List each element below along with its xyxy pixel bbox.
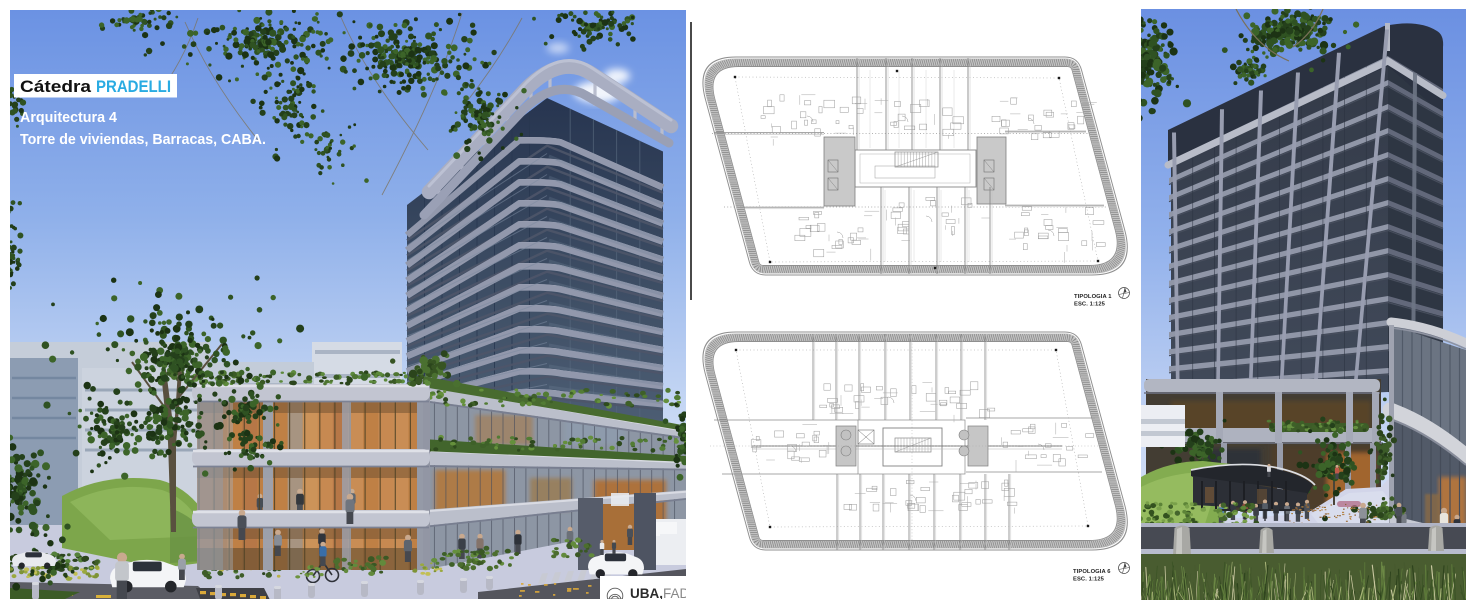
svg-text:ESC. 1:125: ESC. 1:125 [1073, 577, 1105, 583]
svg-text:TIPOLOGIA 1: TIPOLOGIA 1 [1074, 294, 1112, 300]
svg-text:TIPOLOGIA 6: TIPOLOGIA 6 [1073, 569, 1111, 575]
svg-text:ESC. 1:125: ESC. 1:125 [1074, 302, 1106, 308]
